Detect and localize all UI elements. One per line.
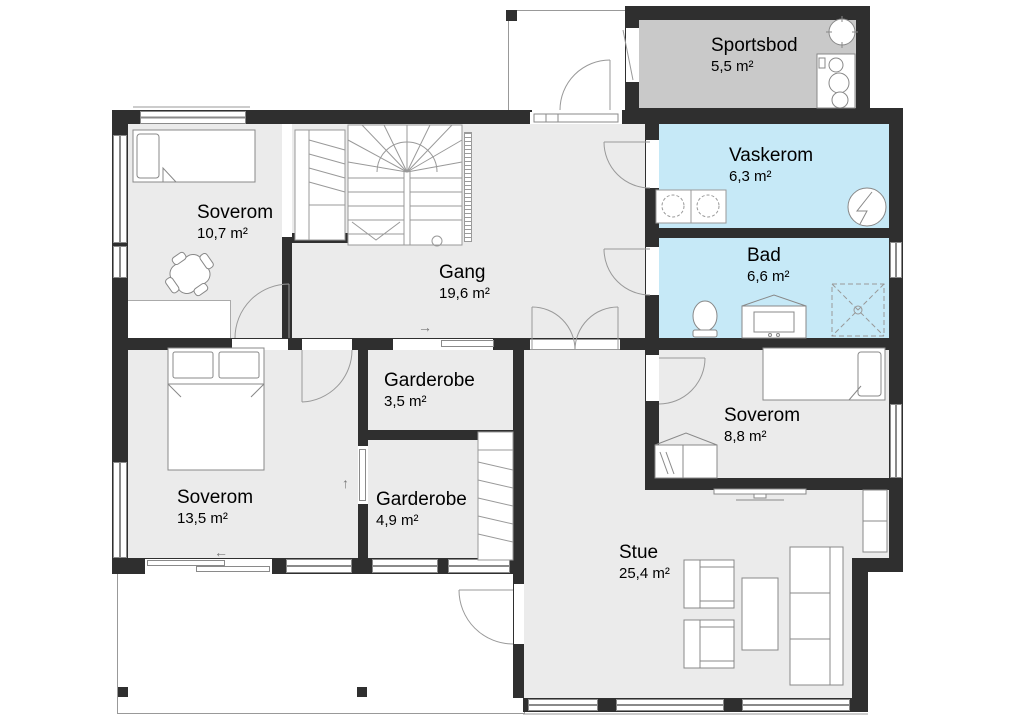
wall-vaskerom-bad bbox=[659, 228, 903, 238]
entrance-porch bbox=[508, 10, 626, 113]
room-name: Garderobe bbox=[376, 488, 467, 511]
wall-stue-left bbox=[513, 348, 524, 698]
terrace bbox=[117, 574, 525, 714]
room-label-vaskerom: Vaskerom 6,3 m² bbox=[729, 144, 813, 186]
porch-post bbox=[506, 10, 517, 21]
room-name: Soverom bbox=[724, 404, 800, 427]
room-name: Vaskerom bbox=[729, 144, 813, 167]
pocket-leaf-garderobe49 bbox=[359, 449, 366, 501]
room-name: Garderobe bbox=[384, 369, 475, 392]
door-balcony-stue bbox=[514, 584, 524, 644]
wall-closet-bottom bbox=[292, 233, 348, 243]
low-ceiling-zone bbox=[128, 300, 231, 338]
door-bad bbox=[646, 247, 659, 295]
sliding-leaf-terrace-2 bbox=[196, 566, 270, 572]
window-soverom88-right bbox=[890, 404, 902, 478]
door-entrance bbox=[530, 112, 622, 124]
room-name: Soverom bbox=[197, 201, 273, 224]
room-area: 6,6 m² bbox=[747, 267, 790, 286]
window-soverom135-left bbox=[113, 462, 127, 558]
wall-soverom107-gang bbox=[282, 237, 292, 338]
door-sportsbod bbox=[626, 28, 639, 82]
door-vaskerom bbox=[646, 140, 659, 188]
room-stue-b bbox=[524, 490, 852, 698]
room-area: 13,5 m² bbox=[177, 509, 253, 528]
wall-soverom88-stue bbox=[645, 478, 903, 490]
room-stue-c bbox=[852, 490, 889, 558]
floor-plan: Sportsbod 5,5 m² Vaskerom 6,3 m² Bad 6,6… bbox=[0, 0, 1018, 720]
window-bad-right bbox=[890, 242, 902, 278]
room-area: 5,5 m² bbox=[711, 57, 798, 76]
room-label-stue: Stue 25,4 m² bbox=[619, 541, 670, 583]
window-soverom107-top bbox=[140, 111, 246, 124]
wall-sportsbod-right bbox=[856, 6, 870, 122]
window-stue-2 bbox=[616, 699, 724, 711]
room-name: Sportsbod bbox=[711, 34, 798, 57]
door-soverom88 bbox=[646, 355, 659, 401]
room-label-gang: Gang 19,6 m² bbox=[439, 261, 490, 303]
room-area: 3,5 m² bbox=[384, 392, 475, 411]
wall-rightwing-top bbox=[625, 108, 903, 124]
wall-bad-soverom88 bbox=[645, 338, 903, 350]
room-area: 19,6 m² bbox=[439, 284, 490, 303]
room-label-garderobe-35: Garderobe 3,5 m² bbox=[384, 369, 475, 411]
window-stue-3 bbox=[742, 699, 850, 711]
room-area: 25,4 m² bbox=[619, 564, 670, 583]
room-area: 8,8 m² bbox=[724, 427, 800, 446]
window-stue-1 bbox=[528, 699, 598, 711]
window-bottom-3 bbox=[448, 559, 510, 573]
room-label-bad: Bad 6,6 m² bbox=[747, 244, 790, 286]
wall-step-right bbox=[852, 558, 903, 572]
wall-sportsbod-top bbox=[625, 6, 870, 20]
room-name: Bad bbox=[747, 244, 790, 267]
window-bottom-2 bbox=[372, 559, 438, 573]
slide-arrow-right-icon: → bbox=[418, 320, 432, 334]
room-area: 4,9 m² bbox=[376, 511, 467, 530]
sliding-leaf-garderobe35 bbox=[441, 340, 494, 347]
wall-exterior-right-lower bbox=[852, 572, 868, 712]
room-name: Stue bbox=[619, 541, 670, 564]
window-soverom107-left-1 bbox=[113, 135, 127, 243]
room-name: Gang bbox=[439, 261, 490, 284]
window-bottom-1 bbox=[286, 559, 352, 573]
door-soverom107 bbox=[232, 339, 288, 350]
door-soverom135 bbox=[302, 339, 352, 350]
stair-railing-hatch bbox=[464, 132, 472, 242]
window-soverom107-left-2 bbox=[113, 246, 127, 278]
slide-arrow-up-icon: ↑ bbox=[342, 476, 349, 490]
room-label-soverom-88: Soverom 8,8 m² bbox=[724, 404, 800, 446]
slide-arrow-left-icon: ← bbox=[214, 545, 228, 559]
room-label-soverom-107: Soverom 10,7 m² bbox=[197, 201, 273, 243]
room-area: 10,7 m² bbox=[197, 224, 273, 243]
room-label-sportsbod: Sportsbod 5,5 m² bbox=[711, 34, 798, 76]
terrace-post-1 bbox=[118, 687, 128, 697]
room-area: 6,3 m² bbox=[729, 167, 813, 186]
wall-garderobe-divider bbox=[368, 430, 513, 440]
room-label-garderobe-49: Garderobe 4,9 m² bbox=[376, 488, 467, 530]
room-label-soverom-135: Soverom 13,5 m² bbox=[177, 486, 253, 528]
door-double-gang-stue bbox=[530, 339, 620, 350]
terrace-post-2 bbox=[357, 687, 367, 697]
room-name: Soverom bbox=[177, 486, 253, 509]
